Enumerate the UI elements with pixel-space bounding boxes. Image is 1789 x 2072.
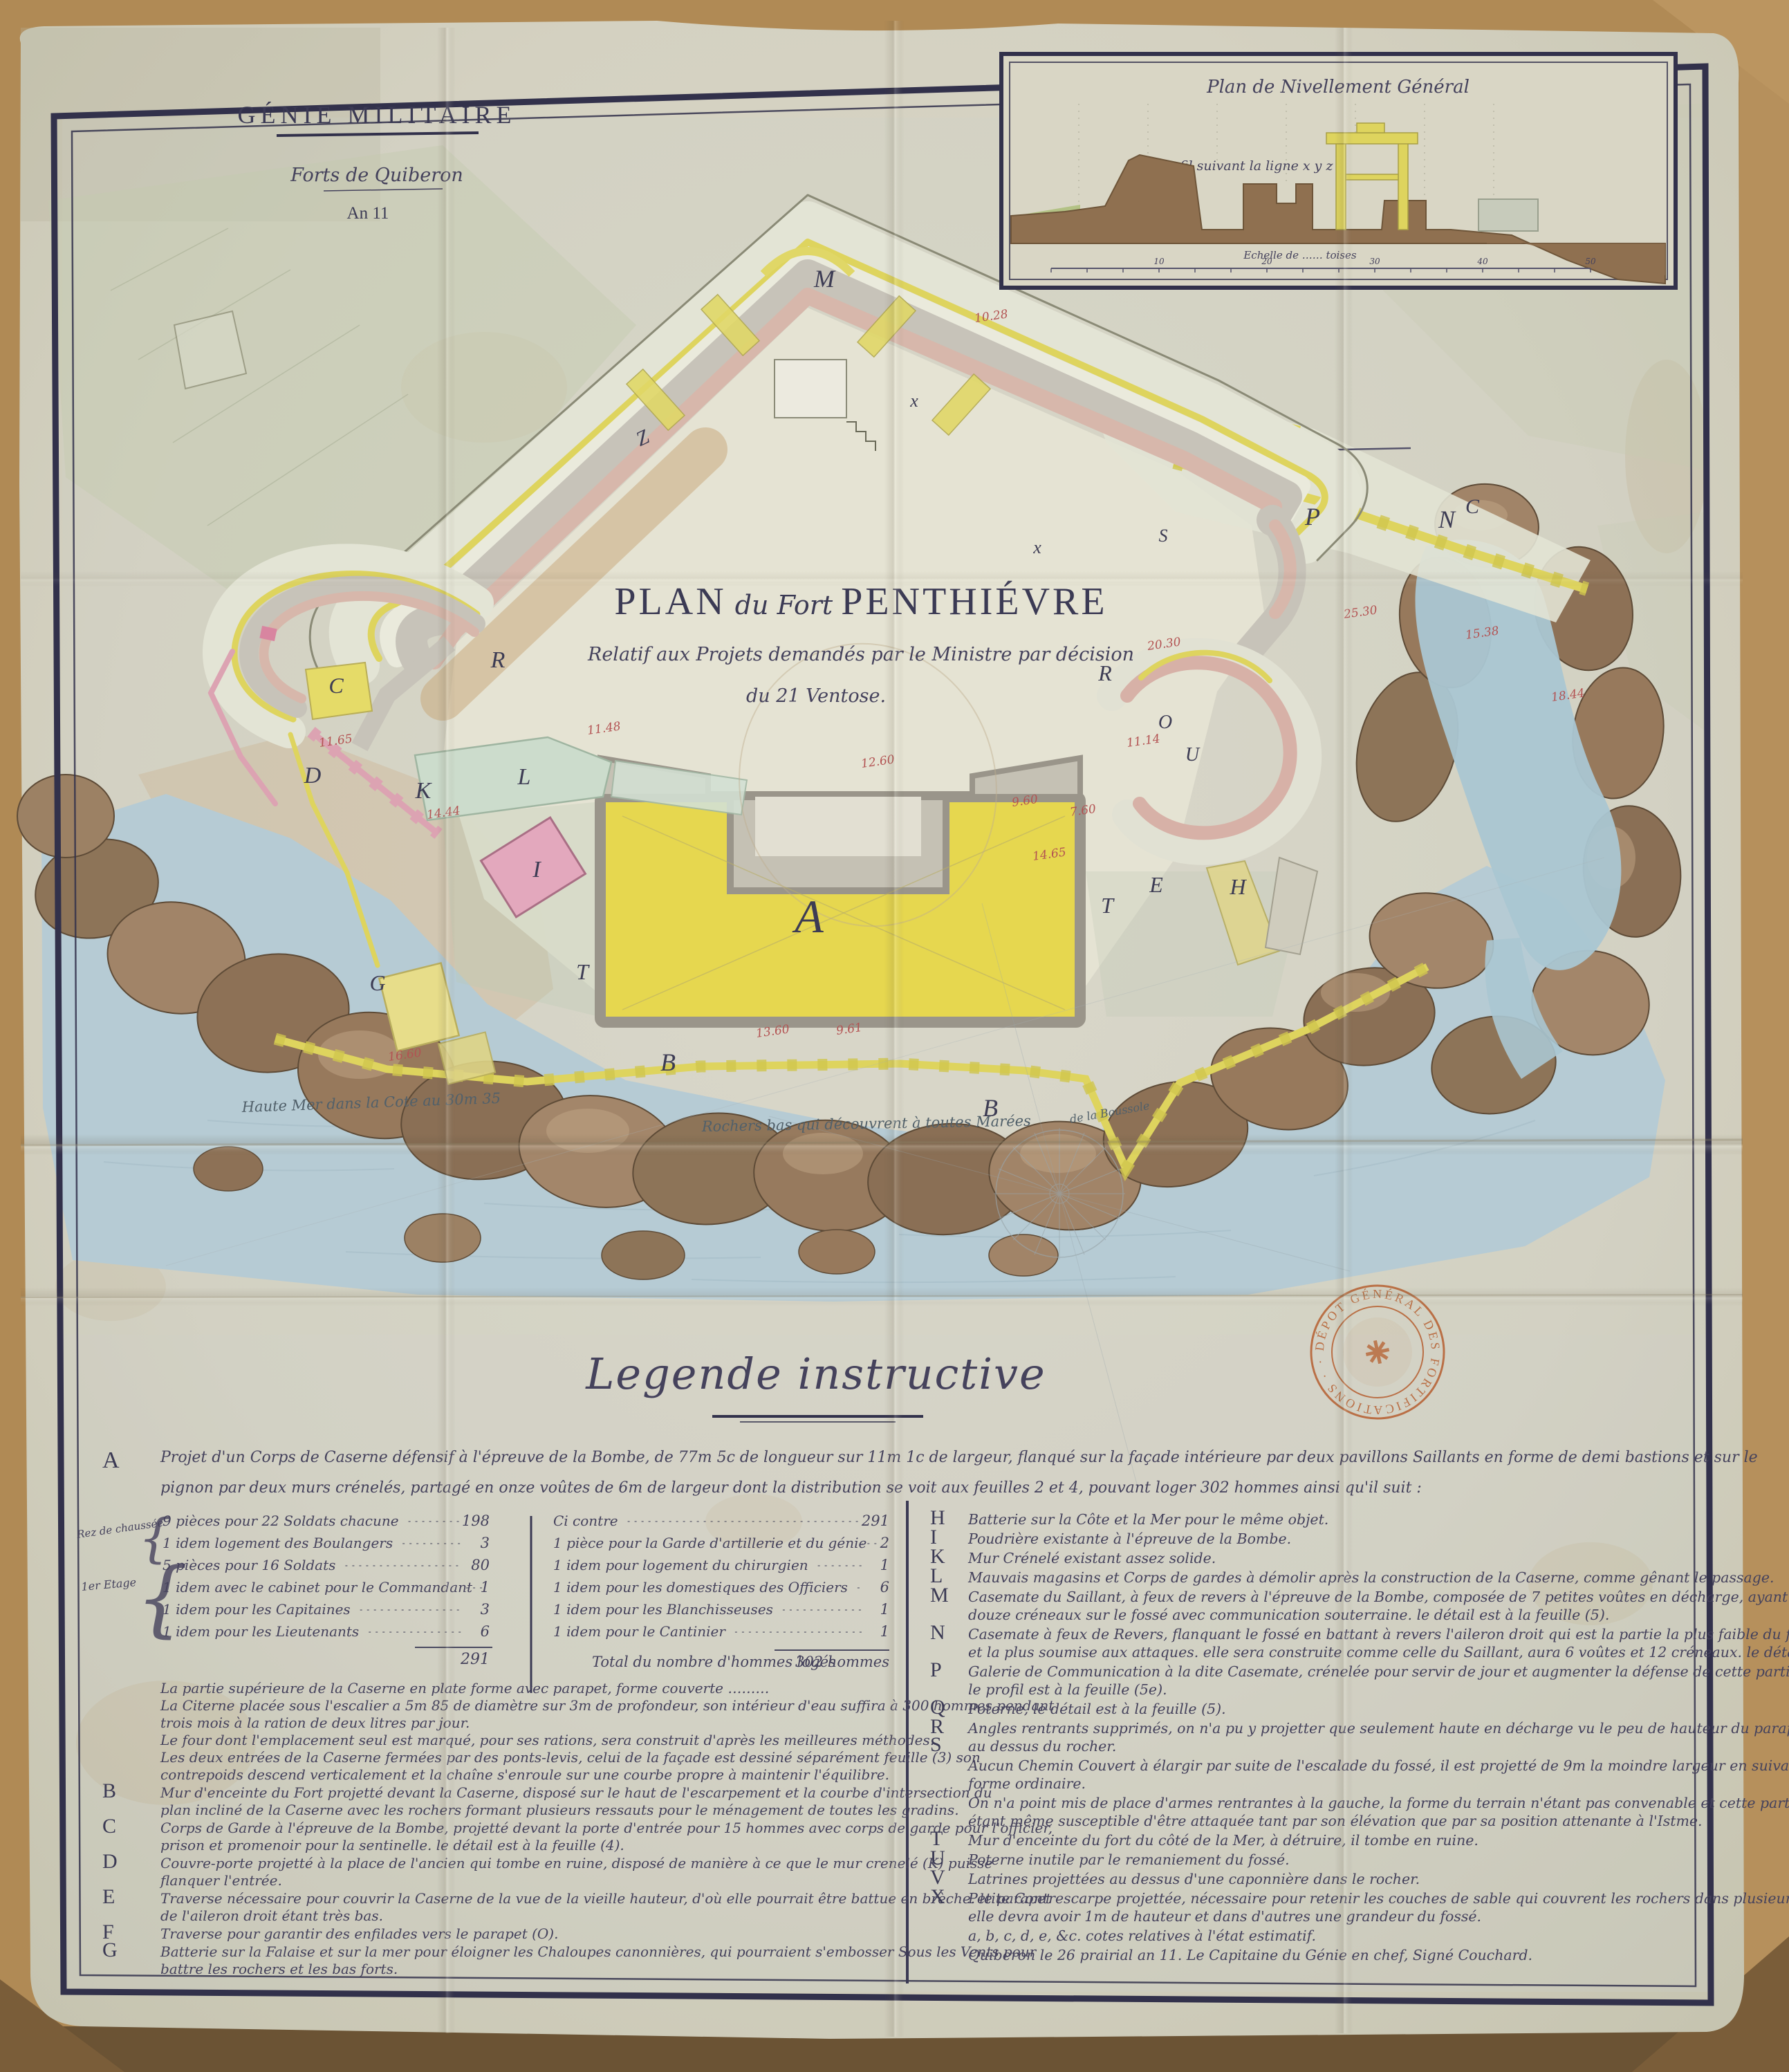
map-letter-R: R <box>1097 660 1112 685</box>
map-letter-A: A <box>792 890 824 943</box>
scale-number: 20 <box>1261 257 1272 266</box>
table-row-label: Ci contre <box>553 1513 618 1529</box>
table-row-label: 1 pièce pour la Garde d'artillerie et du… <box>553 1535 866 1551</box>
legend-letter-C: C <box>102 1815 116 1838</box>
table-row-label: 9 pièces pour 22 Soldats chacune <box>163 1513 399 1529</box>
legend-line: Petite Contrescarpe projettée, nécessair… <box>967 1890 1789 1907</box>
legend-line: Le four dont l'emplacement seul est marq… <box>160 1732 934 1748</box>
map-subtitle-1: Relatif aux Projets demandés par le Mini… <box>587 644 1134 665</box>
map-letter-O: O <box>1158 712 1172 733</box>
table-row-label: 1 idem avec le cabinet pour le Commandan… <box>163 1579 473 1595</box>
map-letter-E: E <box>1149 872 1163 897</box>
legend-intro-line-2: pignon par deux murs crénelés, partagé e… <box>160 1479 1422 1497</box>
legend-line: Angles rentrants supprimés, on n'a pu y … <box>967 1720 1789 1737</box>
scale-number: 40 <box>1476 257 1488 266</box>
table-row-label: 5 pièces pour 16 Soldats <box>163 1557 335 1573</box>
map-title: PLAN du Fort PENTHIÉVRE <box>614 580 1107 623</box>
map-letter-B: B <box>660 1048 676 1076</box>
legend-line: au dessus du rocher. <box>968 1738 1116 1755</box>
legend-line: contrepoids descend verticalement et la … <box>160 1766 889 1783</box>
legend-letter-X: X <box>930 1885 945 1908</box>
inset-gray-block <box>1479 199 1538 231</box>
legend-letter-G: G <box>102 1939 118 1961</box>
table-row-value: 1 <box>481 1579 490 1595</box>
legend-line: Mauvais magasins et Corps de gardes à dé… <box>967 1569 1774 1586</box>
legend-line: trois mois à la ration de deux litres pa… <box>160 1714 470 1731</box>
legend-line: et la plus soumise aux attaques. elle se… <box>968 1644 1789 1661</box>
map-subtitle-2: du 21 Ventose. <box>746 685 886 707</box>
legend-line: Mur d'enceinte du Fort projetté devant l… <box>160 1784 992 1801</box>
legend-line: Casemate à feux de Revers, flanquant le … <box>968 1626 1789 1643</box>
table-row-label: 1 idem pour les Lieutenants <box>163 1623 359 1640</box>
map-letter-B: B <box>983 1094 998 1122</box>
legend-letter-P: P <box>930 1658 942 1681</box>
legend-letter-S: S <box>930 1733 942 1756</box>
map-letter-K: K <box>415 778 433 804</box>
scanned-plan-sheet: PLAN du Fort PENTHIÉVRE Relatif aux Proj… <box>0 0 1789 2072</box>
map-letter-T: T <box>1101 893 1115 918</box>
plan-canvas: PLAN du Fort PENTHIÉVRE Relatif aux Proj… <box>0 0 1789 2072</box>
legend-line: Les deux entrées de la Caserne fermées p… <box>160 1749 981 1766</box>
legend-line: elle devra avoir 1m de hauteur et dans d… <box>968 1908 1481 1925</box>
legend-right-paragraphs: HBatterie sur la Côte et la Mer pour le … <box>930 1506 1789 1963</box>
table-row-value: 6 <box>481 1623 490 1640</box>
scale-number: 10 <box>1153 257 1165 266</box>
legend-line: Poudrière existante à l'épreuve de la Bo… <box>967 1530 1291 1547</box>
scale-number: 30 <box>1369 257 1380 266</box>
map-letter-N: N <box>1438 506 1456 533</box>
header-year: An 11 <box>347 204 389 223</box>
legend-line: Corps de Garde à l'épreuve de la Bombe, … <box>160 1820 1053 1836</box>
legend-line: Poterne, le détail est à la feuille (5). <box>967 1701 1226 1717</box>
legend-line: Traverse nécessaire pour couvrir la Case… <box>160 1890 1052 1907</box>
legend-line: battre les rochers et les bas forts. <box>160 1961 398 1977</box>
map-letter-R: R <box>490 647 506 673</box>
header-corps: GÉNIE MILITAIRE <box>237 101 516 129</box>
map-letter-P: P <box>1304 503 1320 530</box>
table-row-label: 1 idem pour les Capitaines <box>163 1601 351 1618</box>
legend-line: Aucun Chemin Couvert à élargir par suite… <box>967 1757 1789 1774</box>
table-row-label: 1 idem pour les domestiques des Officier… <box>553 1579 848 1595</box>
legend-line: On n'a point mis de place d'armes rentra… <box>968 1795 1789 1811</box>
legend-line: Couvre-porte projetté à la place de l'an… <box>160 1855 992 1871</box>
map-letter-x: x <box>909 391 918 411</box>
map-letter-C: C <box>328 673 344 698</box>
legend-line: Mur Crénelé existant assez solide. <box>967 1550 1216 1566</box>
map-letter-L: L <box>517 764 531 790</box>
legend-line: La Citerne placée sous l'escalier a 5m 8… <box>160 1697 1055 1714</box>
legend-line: flanquer l'entrée. <box>159 1872 282 1889</box>
legend-line: de l'aileron droit étant très bas. <box>160 1907 383 1924</box>
legend-line: Batterie sur la Falaise et sur la mer po… <box>160 1943 1037 1960</box>
table-row-label: 1 idem pour les Blanchisseuses <box>553 1601 773 1618</box>
legend-letter-M: M <box>930 1584 949 1607</box>
table-row-value: 3 <box>481 1535 490 1551</box>
table-right-total-value: 302 hommes <box>795 1654 889 1670</box>
map-letter-C: C <box>1465 495 1480 518</box>
legend-line: douze créneaux sur le fossé avec communi… <box>968 1607 1609 1623</box>
map-letter-T: T <box>576 959 590 984</box>
legend-letter-N: N <box>930 1621 945 1644</box>
legend-letter-D: D <box>102 1850 118 1873</box>
legend-line: forme ordinaire. <box>967 1775 1086 1792</box>
legend-line: a, b, c, d, e, &c. cotes relatives à l'é… <box>968 1927 1316 1944</box>
scale-number: 50 <box>1585 257 1596 266</box>
map-letter-S: S <box>1159 526 1168 546</box>
table-row-label: 1 idem pour logement du chirurgien <box>553 1557 808 1573</box>
map-letter-x: x <box>1032 537 1041 557</box>
map-letter-I: I <box>532 857 541 882</box>
map-letter-D: D <box>304 763 322 788</box>
legend-line: Traverse pour garantir des enfilades ver… <box>160 1925 558 1942</box>
legend-line: le profil est à la feuille (5e). <box>968 1681 1167 1698</box>
table-row-label: 1 idem logement des Boulangers <box>163 1535 393 1551</box>
legend-letter-A: A <box>102 1447 120 1473</box>
table-left-total: 291 <box>460 1651 490 1668</box>
table-row-value: 198 <box>462 1513 490 1529</box>
legend-intro-line-1: Projet d'un Corps de Caserne défensif à … <box>160 1449 1758 1466</box>
legend-heading: Legende instructive <box>585 1349 1046 1399</box>
legend-line: prison et promenoir pour la sentinelle. … <box>160 1837 624 1853</box>
legend-line: Casemate du Saillant, à feux de revers à… <box>968 1589 1788 1605</box>
map-letter-H: H <box>1229 874 1247 899</box>
table-row-value: 3 <box>481 1601 490 1618</box>
legend-line: Batterie sur la Côte et la Mer pour le m… <box>967 1511 1328 1528</box>
legend-line: Poterne inutile par le remaniement du fo… <box>967 1851 1290 1868</box>
table-row-label: 1 idem pour le Cantinier <box>553 1623 726 1640</box>
legend-letter-E: E <box>102 1885 115 1908</box>
map-letter-M: M <box>813 265 836 293</box>
legend-line: Galerie de Communication à la dite Casem… <box>968 1663 1789 1680</box>
legend-line: Mur d'enceinte du fort du côté de la Mer… <box>967 1832 1479 1849</box>
map-letter-U: U <box>1185 744 1201 766</box>
table-row-value: 80 <box>471 1557 490 1573</box>
legend-line: Quiberon le 26 prairial an 11. Le Capita… <box>968 1947 1532 1963</box>
map-letter-G: G <box>369 970 385 995</box>
legend-line: La partie supérieure de la Caserne en pl… <box>160 1680 769 1696</box>
legend-letter-B: B <box>102 1779 116 1802</box>
legend-line: plan incliné de la Caserne avec les roch… <box>160 1802 959 1818</box>
